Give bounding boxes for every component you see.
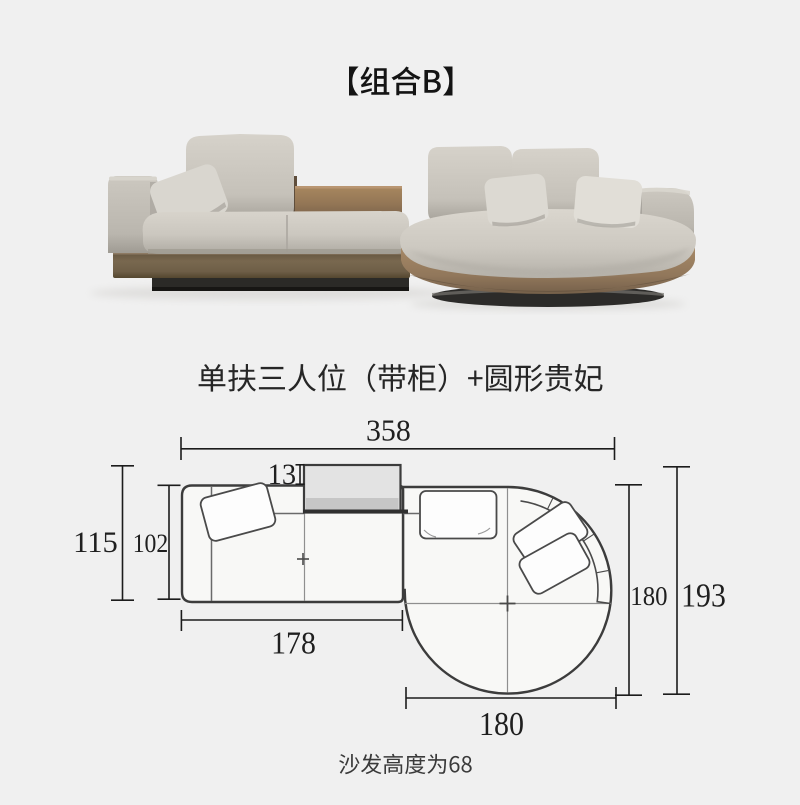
svg-text:102: 102 xyxy=(133,529,169,558)
svg-text:115: 115 xyxy=(73,526,118,559)
svg-text:358: 358 xyxy=(366,413,411,448)
svg-text:178: 178 xyxy=(271,625,316,661)
svg-text:180: 180 xyxy=(479,706,524,743)
svg-text:180: 180 xyxy=(630,581,667,611)
svg-text:13: 13 xyxy=(268,458,297,491)
svg-text:193: 193 xyxy=(681,578,726,615)
